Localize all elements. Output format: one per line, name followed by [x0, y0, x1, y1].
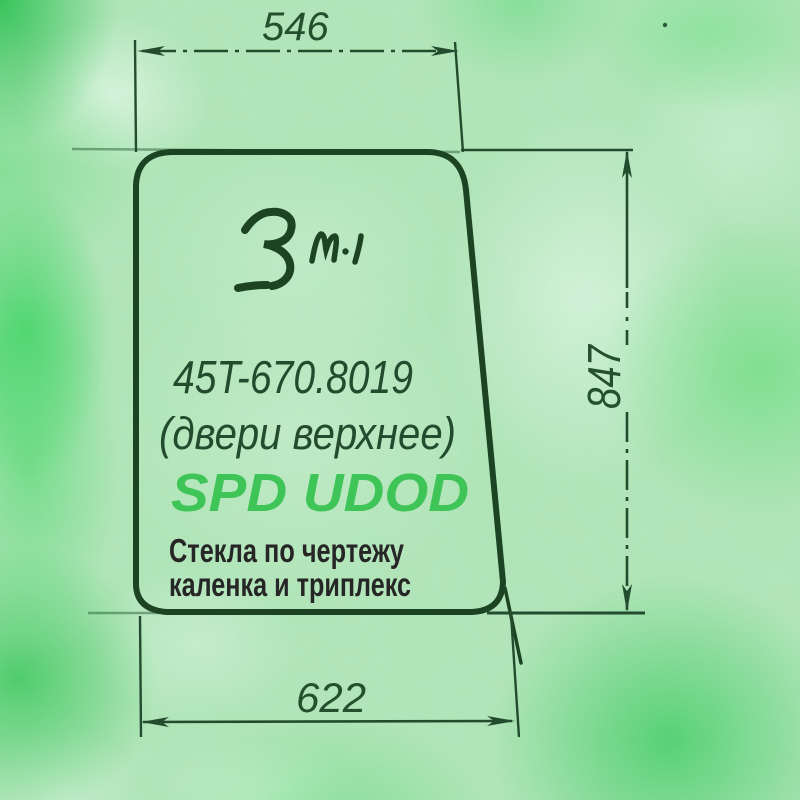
- svg-text:546: 546: [262, 5, 329, 49]
- svg-text:847: 847: [578, 344, 630, 409]
- svg-text:SPD UDOD: SPD UDOD: [171, 463, 469, 523]
- svg-text:Стекла по чертежу: Стекла по чертежу: [169, 532, 404, 569]
- svg-text:45T-670.8019: 45T-670.8019: [173, 351, 413, 403]
- svg-text:каленка и триплекс: каленка и триплекс: [169, 566, 411, 603]
- svg-text:(двери верхнее): (двери верхнее): [159, 408, 456, 459]
- svg-text:622: 622: [296, 674, 366, 721]
